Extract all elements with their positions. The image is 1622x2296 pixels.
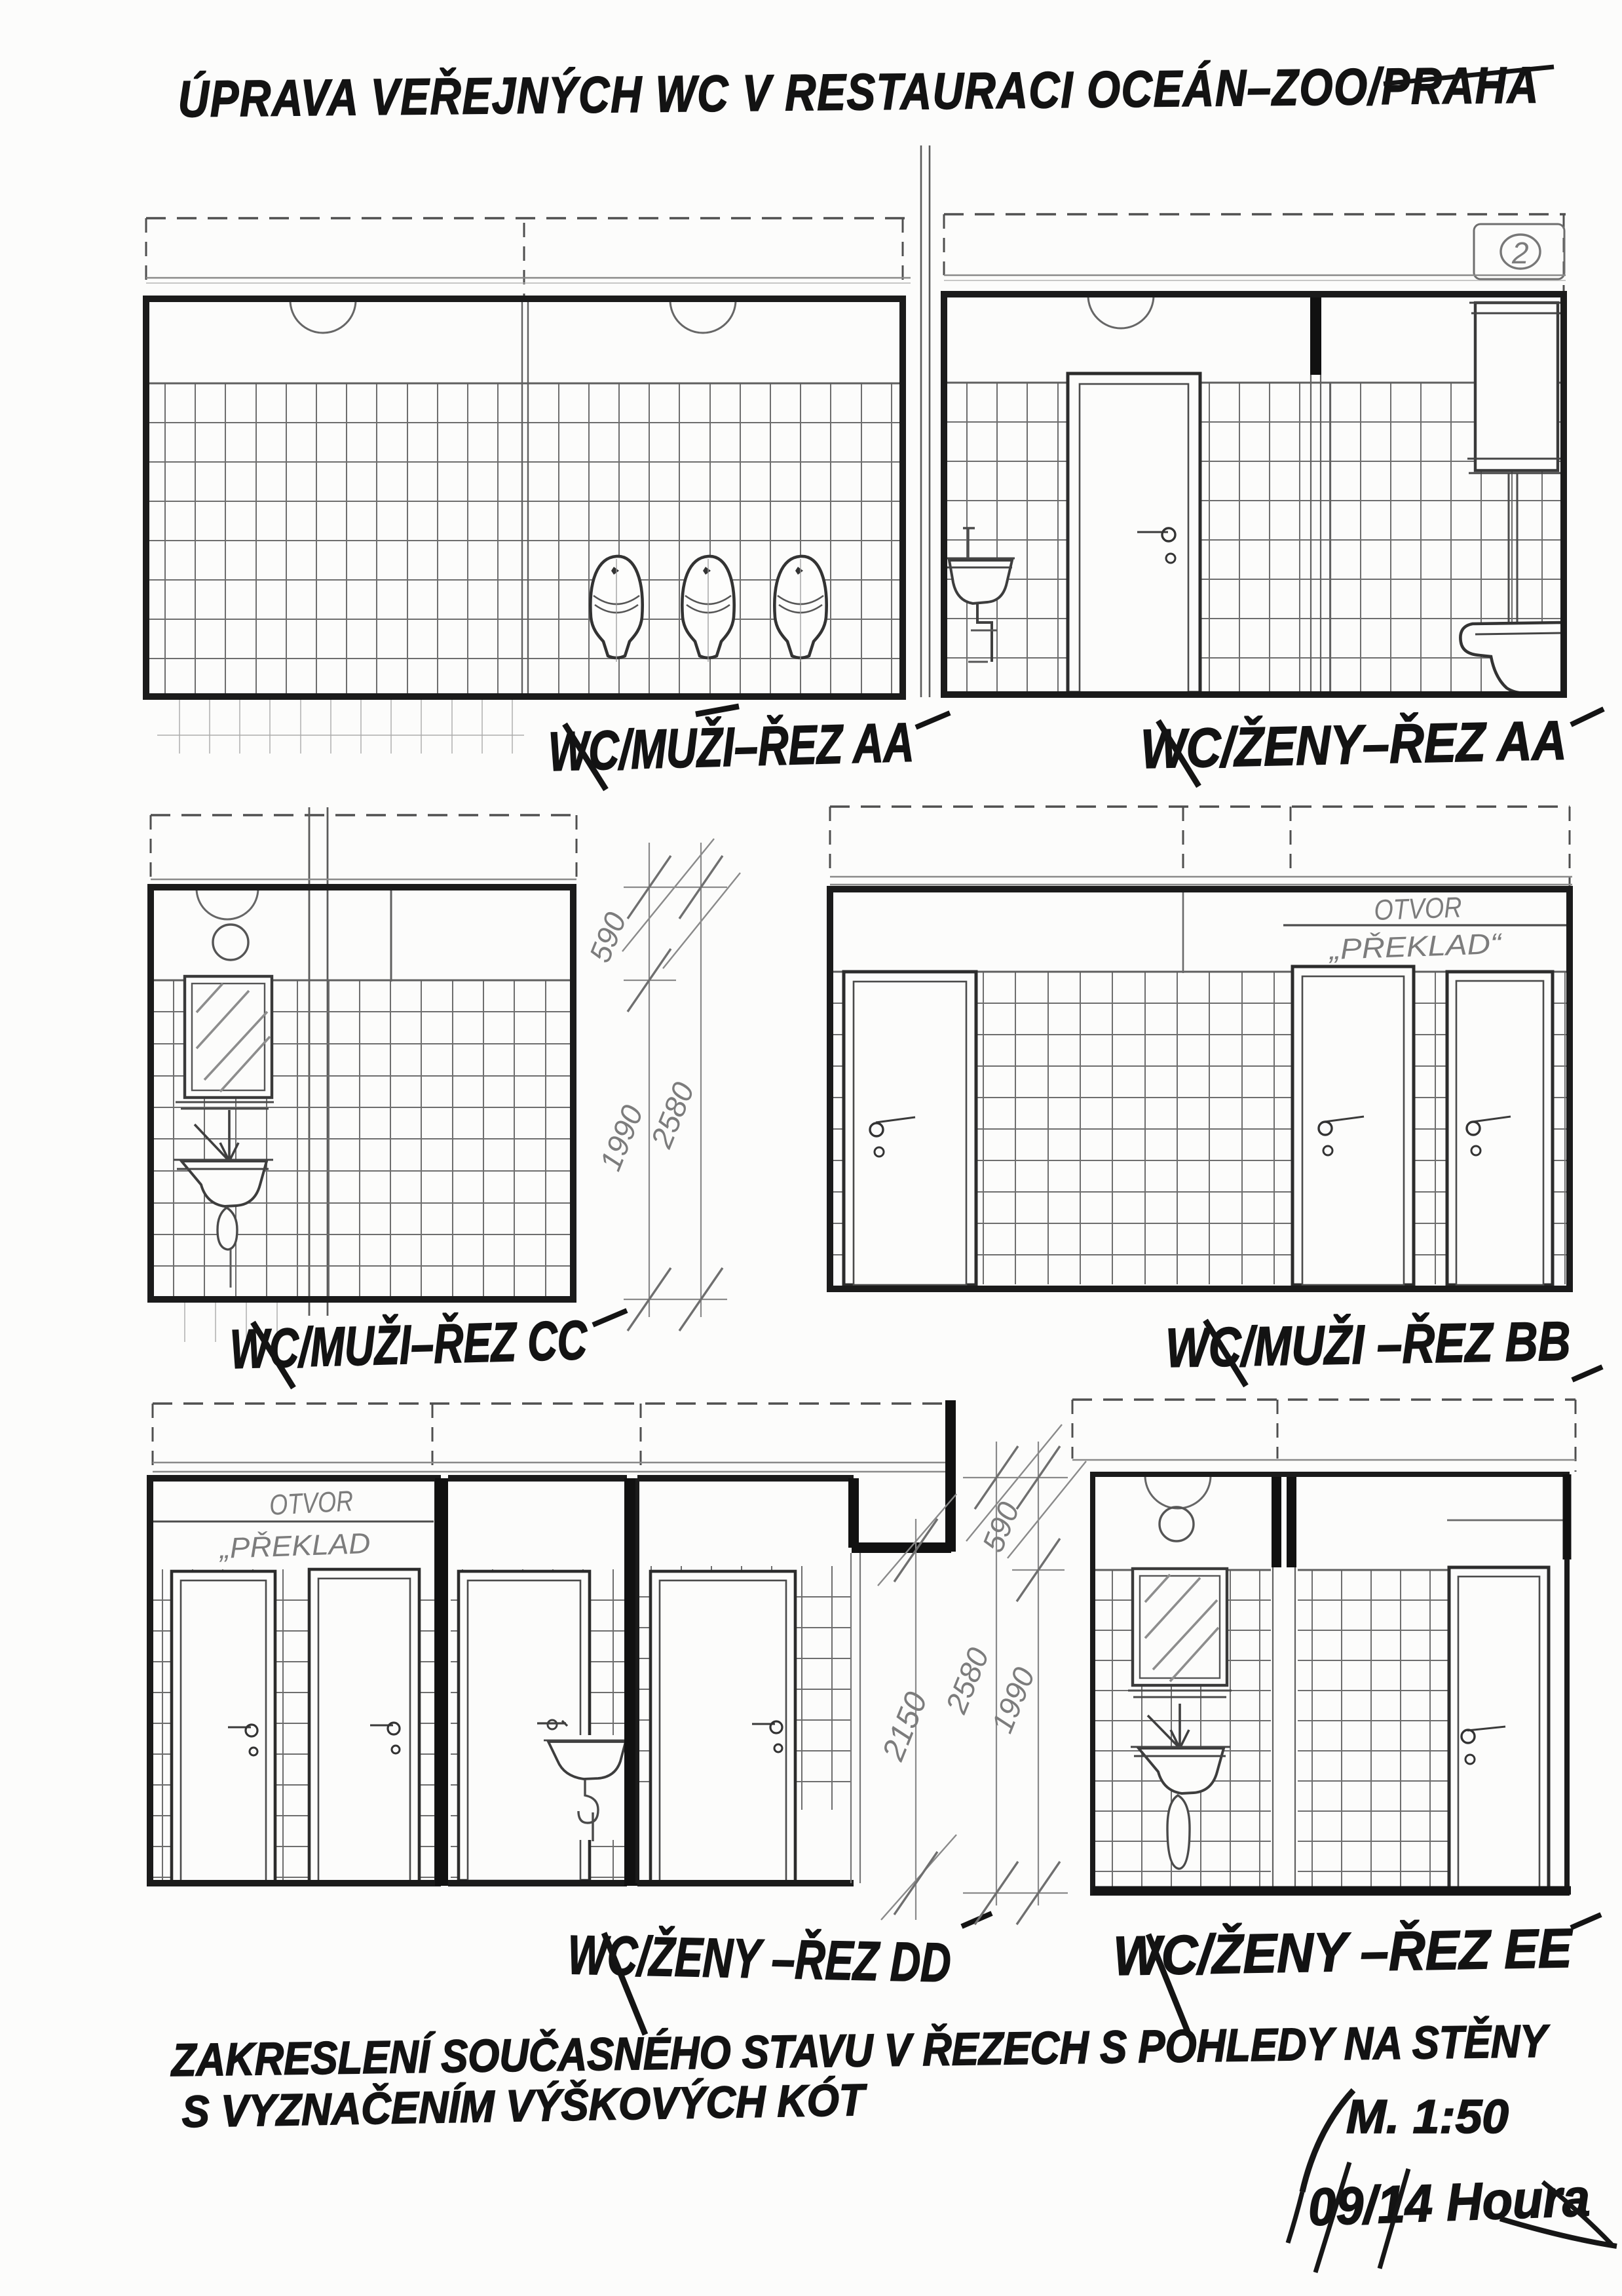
svg-text:OTVOR: OTVOR (1374, 891, 1463, 927)
svg-text:M. 1:50: M. 1:50 (1346, 2091, 1509, 2143)
svg-text:„PŘEKLAD: „PŘEKLAD (218, 1527, 371, 1565)
svg-text:WC/MUŽI–ŘEZ AA: WC/MUŽI–ŘEZ AA (548, 711, 915, 782)
svg-text:09/14 Houra: 09/14 Houra (1307, 2168, 1591, 2236)
svg-text:WC/ŽENY–ŘEZ AA: WC/ŽENY–ŘEZ AA (1140, 709, 1567, 780)
svg-text:WC/MUŽI –ŘEZ BB: WC/MUŽI –ŘEZ BB (1165, 1310, 1572, 1379)
svg-text:OTVOR: OTVOR (269, 1485, 354, 1521)
svg-text:„PŘEKLAD“: „PŘEKLAD“ (1327, 928, 1503, 966)
svg-text:2: 2 (1511, 236, 1529, 270)
svg-text:WC/ŽENY –ŘEZ EE: WC/ŽENY –ŘEZ EE (1113, 1917, 1574, 1987)
